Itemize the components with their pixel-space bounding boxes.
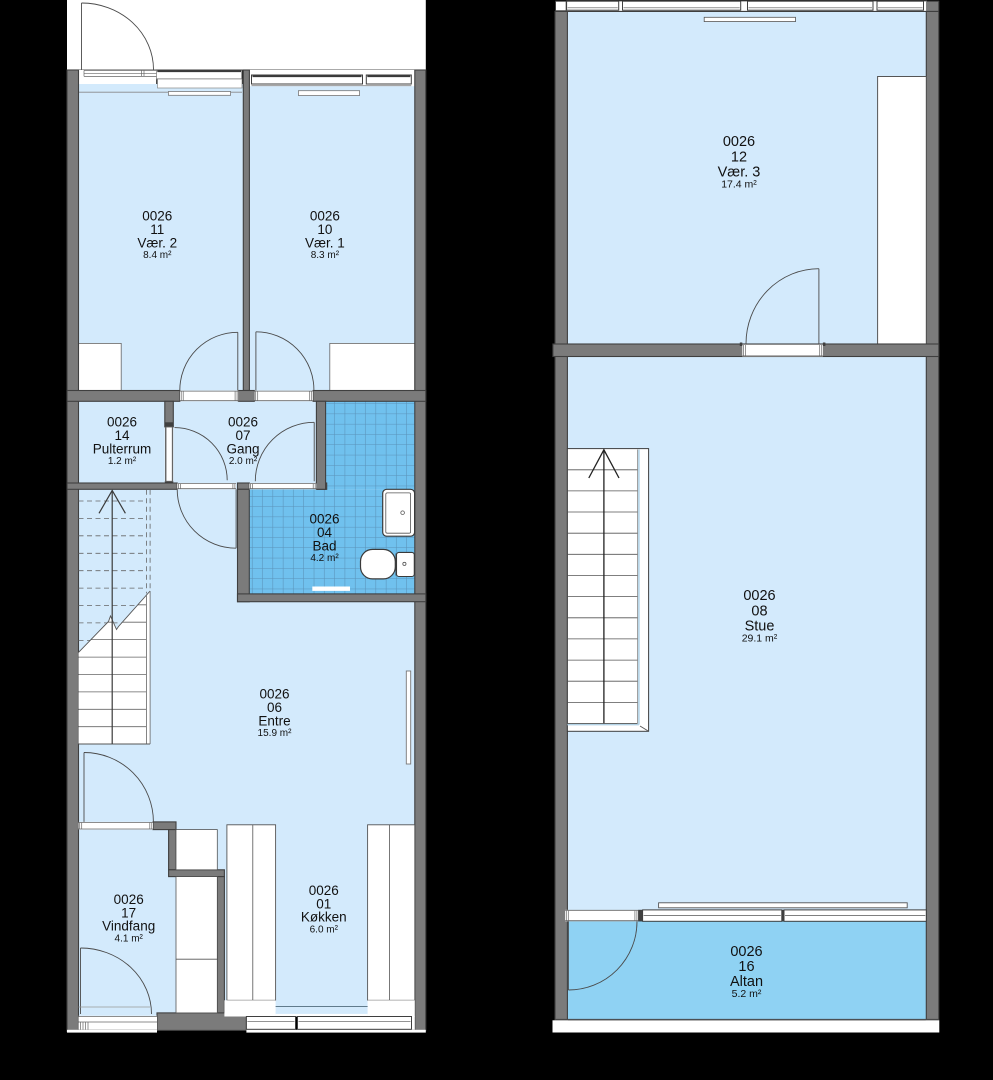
svg-text:4.2 m²: 4.2 m² bbox=[310, 553, 339, 564]
svg-text:2.0 m²: 2.0 m² bbox=[229, 456, 258, 467]
svg-text:Vær. 1: Vær. 1 bbox=[305, 235, 345, 250]
svg-text:08: 08 bbox=[751, 603, 767, 619]
svg-text:5.2 m²: 5.2 m² bbox=[732, 988, 762, 1000]
svg-text:Entre: Entre bbox=[258, 713, 290, 728]
svg-text:0026: 0026 bbox=[723, 134, 755, 150]
svg-text:6.0 m²: 6.0 m² bbox=[310, 924, 339, 935]
svg-text:0026: 0026 bbox=[743, 588, 775, 604]
svg-text:Vær. 2: Vær. 2 bbox=[137, 235, 177, 250]
svg-text:Vindfang: Vindfang bbox=[102, 919, 155, 934]
svg-text:Køkken: Køkken bbox=[301, 910, 347, 925]
svg-text:Pulterrum: Pulterrum bbox=[93, 441, 152, 456]
svg-text:8.3 m²: 8.3 m² bbox=[311, 250, 340, 261]
svg-text:29.1 m²: 29.1 m² bbox=[742, 633, 778, 645]
svg-text:0026: 0026 bbox=[730, 944, 762, 960]
svg-text:Gang: Gang bbox=[226, 441, 259, 456]
svg-text:15.9 m²: 15.9 m² bbox=[258, 728, 293, 739]
svg-text:4.1 m²: 4.1 m² bbox=[115, 933, 144, 944]
svg-text:17.4 m²: 17.4 m² bbox=[721, 179, 757, 191]
svg-text:12: 12 bbox=[731, 149, 747, 165]
svg-text:16: 16 bbox=[738, 959, 754, 975]
svg-text:1.2 m²: 1.2 m² bbox=[108, 456, 137, 467]
svg-text:Bad: Bad bbox=[312, 538, 336, 553]
svg-text:8.4 m²: 8.4 m² bbox=[143, 250, 172, 261]
